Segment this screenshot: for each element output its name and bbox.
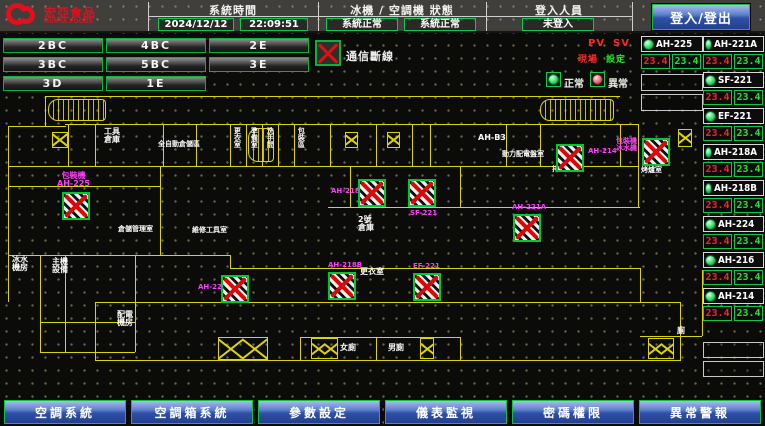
date-value: 2024/12/12: [158, 18, 234, 31]
comm-fail-icon: [315, 40, 341, 66]
room-label: 全自動倉儲區: [158, 141, 200, 148]
toilet-male-label: 男廁: [388, 344, 404, 352]
unit-name: AH-224: [718, 219, 754, 230]
stairs-icon: [540, 99, 614, 121]
rp-values: 23.4 23.4: [641, 54, 701, 69]
bottom-tab-password-auth[interactable]: 密碼權限: [512, 400, 634, 424]
rp-unit-ah218b[interactable]: AH-218B: [703, 180, 764, 196]
stair-x-icon: [311, 338, 338, 359]
empty-slot: [641, 74, 703, 91]
room-label: 烤爐室: [641, 167, 662, 174]
rp-unit-ef221[interactable]: EF-221: [703, 108, 764, 124]
room-label: 配電機房: [117, 311, 133, 328]
empty-slot: [703, 342, 764, 358]
shaft-x-icon: [678, 129, 692, 147]
pv-value: 23.4: [703, 198, 732, 213]
unit-label: AH-214: [588, 148, 617, 155]
shaft-x-icon: [387, 132, 400, 148]
unit-label: 包裝機AH-225: [57, 172, 90, 189]
room-label: 包裝區: [297, 127, 304, 148]
floor-button-4bc[interactable]: 4BC: [106, 38, 206, 53]
status-lamp-icon: [705, 147, 712, 158]
room-label: 洗手間: [266, 127, 273, 148]
sv-value: 23.4: [734, 90, 763, 105]
rp-values: 23.4 23.4: [703, 234, 763, 249]
rp-values: 23.4 23.4: [703, 162, 763, 177]
floor-button-5bc[interactable]: 5BC: [106, 57, 206, 72]
unit-name: AH-218B: [714, 183, 757, 194]
rp-unit-ah214[interactable]: AH-214: [703, 288, 764, 304]
time-value: 22:09:51: [240, 18, 308, 31]
pv-label: PV: [588, 38, 605, 49]
status-lamp-icon: [705, 111, 716, 122]
rp-unit-ah216[interactable]: AH-216: [703, 252, 764, 268]
room-label: AH-B3: [478, 134, 506, 142]
rp-unit-ah225[interactable]: AH-225: [641, 36, 703, 52]
rp-values: 23.4 23.4: [703, 90, 763, 105]
status-lamp-icon: [705, 291, 716, 302]
chiller-status-value: 系統正常: [326, 18, 398, 31]
shaft-x-icon: [345, 132, 358, 148]
rp-unit-ah218a[interactable]: AH-218A: [703, 144, 764, 160]
status-lamp-icon: [705, 39, 712, 50]
room-label: 準備室: [250, 127, 257, 148]
sv-value: 23.4: [734, 270, 763, 285]
ahu-comm-fail-icon-ah214[interactable]: [556, 144, 584, 172]
company-logo: 宏亞食品 HUNYA FOODS: [6, 3, 96, 29]
floor-button-3d[interactable]: 3D: [3, 76, 103, 91]
ahu-comm-fail-icon-ah225[interactable]: [62, 192, 90, 220]
rp-values: 23.4 23.4: [703, 54, 763, 69]
ahu-comm-fail-icon-ah224[interactable]: [221, 275, 249, 303]
top-status-bar: 宏亞食品 HUNYA FOODS 系統時間 冰機 / 空調機 狀態 登入人員 2…: [0, 0, 765, 33]
rp-values: 23.4 23.4: [703, 306, 763, 321]
room-label: 維修工具室: [192, 227, 227, 234]
login-label: 登入人員: [486, 2, 632, 18]
sv-value: 23.4: [734, 234, 763, 249]
room-label: 更衣室: [233, 127, 240, 148]
sv-value: 23.4: [734, 306, 763, 321]
bottom-tab-alarm[interactable]: 異常警報: [639, 400, 761, 424]
empty-slot: [641, 94, 703, 111]
ahu-comm-fail-icon-ef221[interactable]: [413, 273, 441, 301]
ahu-comm-fail-icon-sf221[interactable]: [408, 179, 436, 207]
pv-value: 23.4: [703, 270, 732, 285]
divider: [632, 2, 633, 31]
sv-value: 23.4: [672, 54, 701, 69]
floor-button-3bc[interactable]: 3BC: [3, 57, 103, 72]
stair-x-icon: [218, 337, 268, 360]
logo-text-en: HUNYA FOODS: [44, 19, 96, 25]
ahu-comm-fail-icon-unit9[interactable]: [642, 138, 670, 166]
unit-name: SF-221: [718, 75, 752, 86]
pv-value: 23.4: [703, 126, 732, 141]
status-lamp-icon: [705, 219, 716, 230]
comm-fail-label: 通信斷線: [346, 48, 394, 64]
room-label: 動力配電盤室: [502, 151, 544, 158]
unit-label: 包裝機冰水機: [616, 138, 637, 153]
sv-value: 23.4: [734, 126, 763, 141]
unit-name: AH-218A: [714, 147, 757, 158]
room-label: 更衣室: [360, 268, 384, 276]
stairs-icon: [48, 99, 106, 121]
login-logout-button[interactable]: 登入/登出: [652, 4, 750, 30]
status-lamp-icon: [643, 39, 654, 50]
room-label: 倉儲管理室: [118, 226, 153, 233]
sv-value: 23.4: [734, 54, 763, 69]
ahu-status-value: 系統正常: [404, 18, 476, 31]
unit-label: AH-221A: [512, 204, 546, 211]
shaft-x-icon: [52, 132, 68, 148]
normal-lamp-icon: [546, 72, 561, 87]
bottom-tab-param-setting[interactable]: 參數設定: [258, 400, 380, 424]
abnormal-lamp-icon: [590, 72, 605, 87]
floor-button-3e[interactable]: 3E: [209, 57, 309, 72]
empty-slot: [703, 361, 764, 377]
pv-value: 23.4: [703, 234, 732, 249]
logo-icon: [6, 3, 40, 29]
machine-status-label: 冰機 / 空調機 狀態: [318, 2, 486, 18]
rp-values: 23.4 23.4: [703, 126, 763, 141]
system-time-label: 系統時間: [148, 2, 318, 18]
rp-values: 23.4 23.4: [703, 198, 763, 213]
ahu-comm-fail-icon-ah218a[interactable]: [358, 179, 386, 207]
unit-label: SF-221: [410, 210, 437, 217]
abnormal-legend-label: 異常: [608, 75, 628, 90]
pv-sub-label: 現場: [578, 52, 598, 65]
room-label: 冰水機房: [12, 256, 28, 273]
stair-x-icon: [648, 338, 674, 359]
toilet-label: 廁: [677, 327, 685, 335]
bottom-tab-ahu-system[interactable]: 空調箱系統: [131, 400, 253, 424]
unit-name: AH-225: [656, 39, 692, 50]
sv-label: SV: [613, 38, 630, 49]
room-label: 工具倉庫: [104, 128, 120, 145]
bottom-tab-meter-monitor[interactable]: 儀表監視: [385, 400, 507, 424]
rp-values: 23.4 23.4: [703, 270, 763, 285]
floor-button-2bc[interactable]: 2BC: [3, 38, 103, 53]
status-lamp-icon: [705, 75, 716, 86]
sv-value: 23.4: [734, 162, 763, 177]
sv-sub-label: 設定: [606, 52, 626, 65]
pv-value: 23.4: [703, 306, 732, 321]
unit-name: AH-214: [718, 291, 754, 302]
pv-value: 23.4: [641, 54, 670, 69]
unit-label: AH-218B: [328, 262, 362, 269]
room-label: 2號倉庫: [358, 216, 374, 233]
ahu-comm-fail-icon-ah218b[interactable]: [328, 272, 356, 300]
pv-value: 23.4: [703, 162, 732, 177]
floor-button-2e[interactable]: 2E: [209, 38, 309, 53]
login-status-value: 未登入: [522, 18, 594, 31]
rp-unit-ah224[interactable]: AH-224: [703, 216, 764, 232]
unit-name: AH-221A: [714, 39, 757, 50]
unit-label: EF-221: [413, 263, 440, 270]
status-lamp-icon: [705, 183, 712, 194]
normal-legend-label: 正常: [564, 75, 584, 90]
sv-value: 23.4: [734, 198, 763, 213]
room-label: 主機設備: [52, 258, 68, 275]
stair-x-icon: [420, 338, 434, 359]
unit-name: AH-216: [718, 255, 754, 266]
pv-value: 23.4: [703, 90, 732, 105]
pv-value: 23.4: [703, 54, 732, 69]
rp-unit-ah221a[interactable]: AH-221A: [703, 36, 764, 52]
floor-button-1e[interactable]: 1E: [106, 76, 206, 91]
bottom-tab-hvac-system[interactable]: 空調系統: [4, 400, 126, 424]
ahu-comm-fail-icon-ah221a[interactable]: [513, 214, 541, 242]
rp-unit-sf221[interactable]: SF-221: [703, 72, 764, 88]
status-lamp-icon: [705, 255, 716, 266]
toilet-female-label: 女廁: [340, 344, 356, 352]
unit-name: EF-221: [718, 111, 752, 122]
